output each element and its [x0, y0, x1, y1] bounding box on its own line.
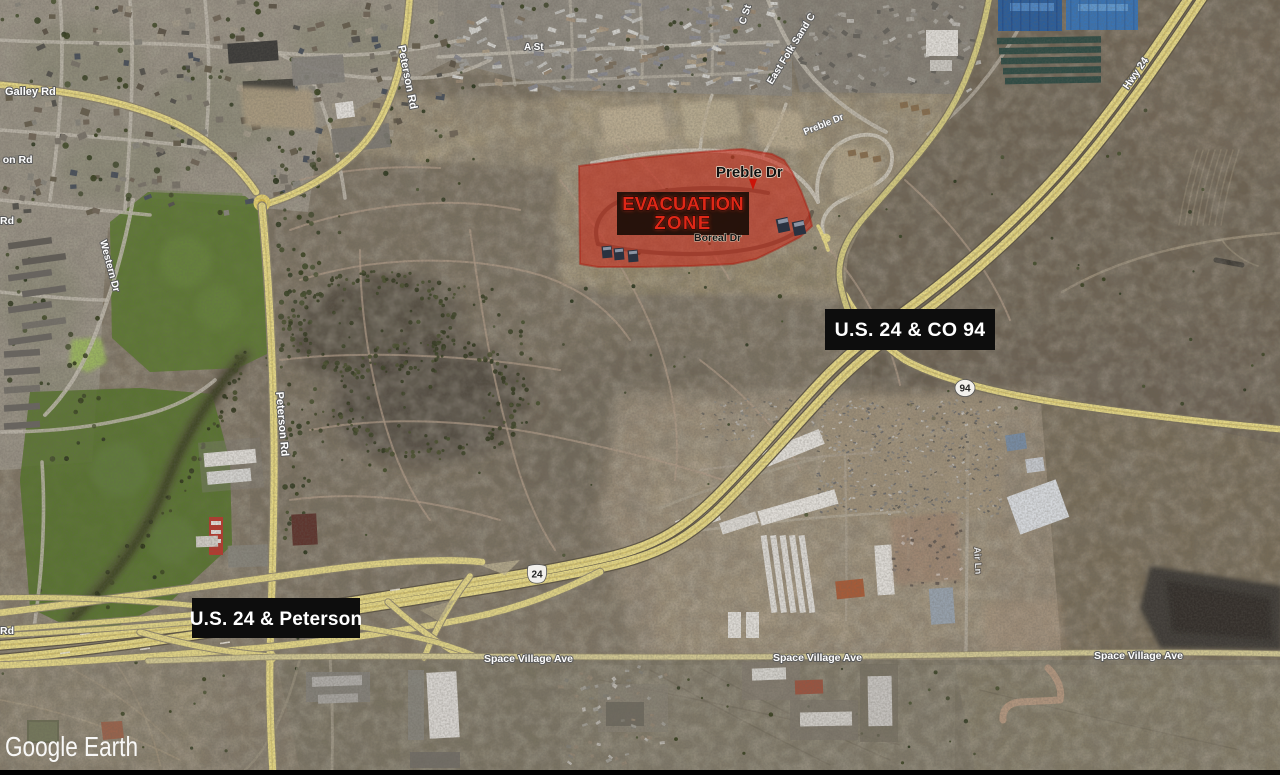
svg-text:Rd: Rd: [0, 215, 14, 227]
svg-text:U.S. 24 & CO 94: U.S. 24 & CO 94: [835, 319, 986, 341]
svg-text:Space Village Ave: Space Village Ave: [1094, 650, 1183, 662]
svg-text:Air Ln: Air Ln: [971, 547, 983, 575]
svg-text:EVACUATION: EVACUATION: [622, 193, 744, 214]
svg-text:24: 24: [531, 570, 543, 581]
svg-text:94: 94: [959, 384, 971, 395]
svg-text:U.S. 24 & Peterson: U.S. 24 & Peterson: [190, 609, 363, 630]
svg-text:s on Rd: s on Rd: [0, 154, 33, 166]
svg-text:Google Earth: Google Earth: [5, 731, 138, 762]
svg-text:A St: A St: [524, 42, 544, 53]
svg-text:Space Village Ave: Space Village Ave: [484, 653, 573, 665]
svg-text:Galley Rd: Galley Rd: [5, 86, 56, 98]
svg-text:Preble Dr: Preble Dr: [716, 164, 783, 181]
svg-text:Rd: Rd: [0, 625, 14, 637]
svg-text:Boreal Dr: Boreal Dr: [694, 232, 741, 244]
svg-text:ZONE: ZONE: [654, 212, 711, 233]
svg-text:Space Village Ave: Space Village Ave: [773, 652, 862, 664]
